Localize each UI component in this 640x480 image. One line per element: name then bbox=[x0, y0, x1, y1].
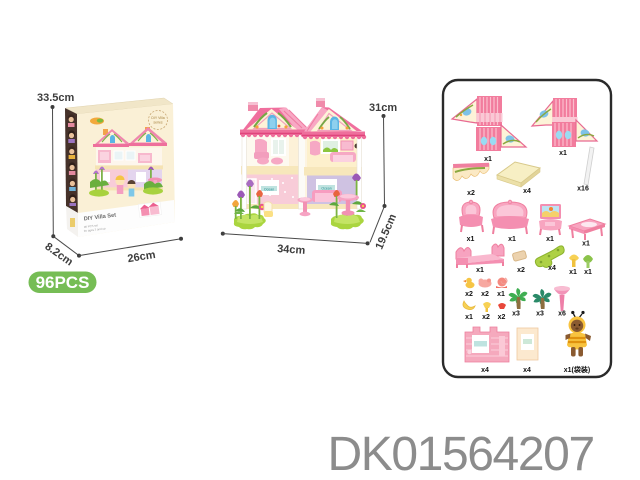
svg-text:x4: x4 bbox=[523, 367, 531, 374]
svg-text:DIY Villa: DIY Villa bbox=[151, 116, 164, 120]
svg-text:x1: x1 bbox=[582, 241, 590, 248]
svg-text:DK01564207: DK01564207 bbox=[328, 428, 594, 480]
svg-text:x1: x1 bbox=[476, 267, 484, 274]
svg-text:Ocean: Ocean bbox=[264, 188, 274, 192]
svg-text:x4: x4 bbox=[548, 265, 556, 272]
svg-text:x3: x3 bbox=[512, 311, 520, 318]
svg-text:x2: x2 bbox=[517, 267, 525, 274]
svg-text:31cm: 31cm bbox=[369, 102, 397, 114]
svg-text:x1(袋装): x1(袋装) bbox=[564, 365, 590, 374]
svg-text:x2: x2 bbox=[465, 291, 473, 298]
svg-text:x1: x1 bbox=[484, 156, 492, 163]
svg-text:x1: x1 bbox=[569, 269, 577, 276]
svg-text:Ocean: Ocean bbox=[321, 187, 331, 191]
svg-text:series: series bbox=[153, 121, 163, 125]
svg-text:x1: x1 bbox=[584, 269, 592, 276]
svg-text:x2: x2 bbox=[498, 314, 506, 321]
svg-text:96PCS: 96PCS bbox=[36, 273, 90, 292]
svg-text:x1: x1 bbox=[546, 236, 554, 243]
svg-text:x1: x1 bbox=[467, 236, 475, 243]
svg-text:x1: x1 bbox=[497, 291, 505, 298]
svg-text:33.5cm: 33.5cm bbox=[37, 92, 75, 104]
svg-text:x2: x2 bbox=[482, 314, 490, 321]
svg-text:x4: x4 bbox=[523, 188, 531, 195]
svg-text:x16: x16 bbox=[577, 186, 589, 193]
svg-text:x2: x2 bbox=[481, 291, 489, 298]
svg-text:34cm: 34cm bbox=[277, 243, 306, 257]
svg-text:x2: x2 bbox=[467, 190, 475, 197]
svg-text:x1: x1 bbox=[559, 150, 567, 157]
svg-text:x1: x1 bbox=[465, 314, 473, 321]
svg-text:x4: x4 bbox=[481, 367, 489, 374]
svg-text:x6: x6 bbox=[558, 311, 566, 318]
svg-text:x1: x1 bbox=[508, 236, 516, 243]
svg-text:x3: x3 bbox=[536, 311, 544, 318]
